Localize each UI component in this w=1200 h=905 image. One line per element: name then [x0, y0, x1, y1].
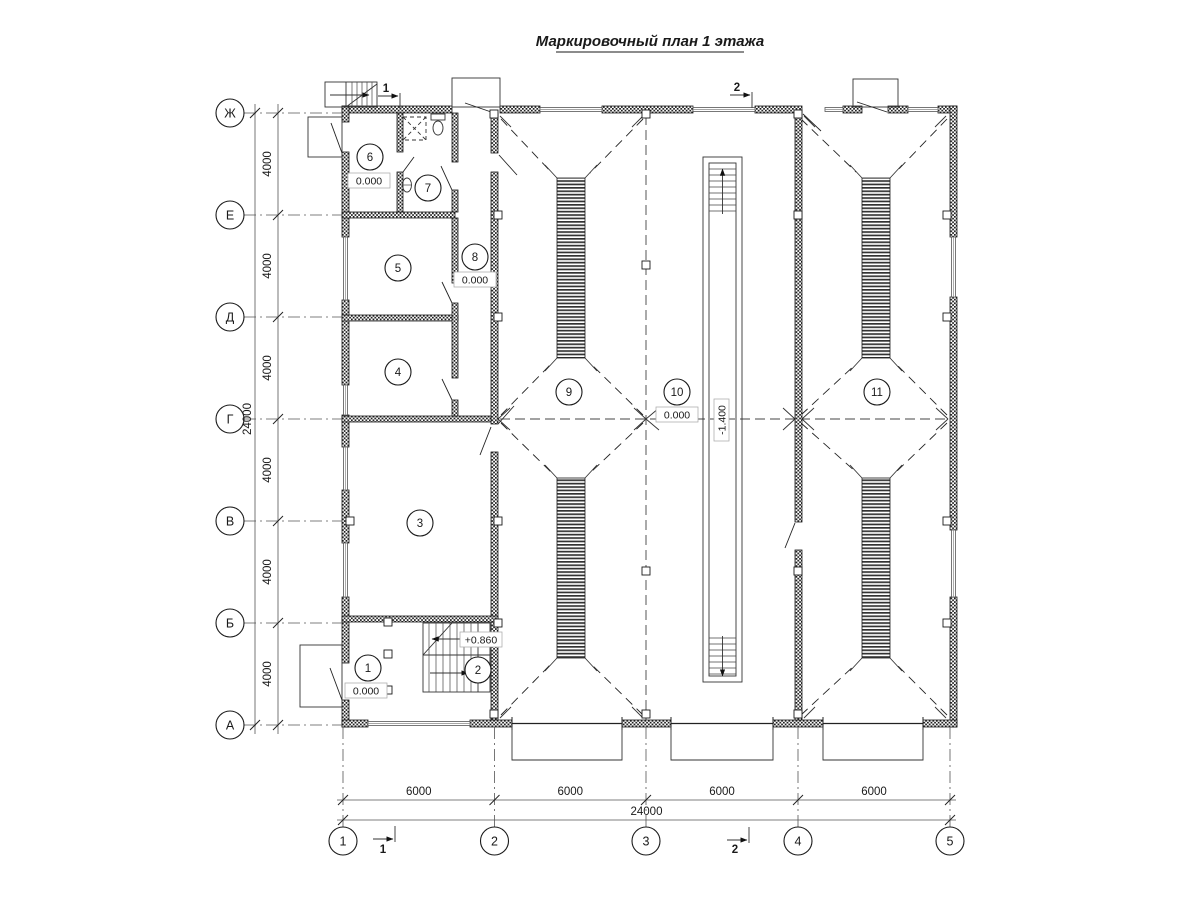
dim-label-6000: 6000 [406, 786, 432, 798]
drawing-title: Маркировочный план 1 этажа [536, 33, 764, 52]
floor-plan-svg: Маркировочный план 1 этажа [0, 0, 1200, 900]
svg-text:0.000: 0.000 [353, 686, 379, 698]
svg-text:0.000: 0.000 [356, 176, 382, 188]
door-leaves [330, 102, 887, 700]
exterior-stair [325, 82, 377, 107]
room-number: 5 [395, 263, 401, 275]
col-axis-label: 5 [947, 835, 954, 849]
dimensions-bottom: 600060006000600024000 [337, 786, 956, 825]
col-axis-label: 2 [491, 835, 498, 849]
svg-text:+0.860: +0.860 [465, 635, 498, 647]
room-number: 4 [395, 367, 402, 379]
row-axes: ЖЕДГВБА [216, 99, 342, 739]
row-axis-label: А [226, 719, 235, 733]
gate-openings [512, 717, 923, 730]
dim-label-4000: 4000 [262, 661, 274, 687]
dim-label-4000: 4000 [262, 355, 274, 381]
row-axis-label: Ж [224, 107, 236, 121]
dim-label-4000: 4000 [262, 253, 274, 279]
room-number: 2 [475, 665, 481, 677]
svg-text:2: 2 [732, 844, 738, 856]
section-mark: 2 [730, 82, 752, 108]
room-number: 8 [472, 252, 478, 264]
room-number: 1 [365, 663, 371, 675]
dim-label-6000: 6000 [709, 786, 735, 798]
row-axis-label: Б [226, 617, 234, 631]
drawing-sheet: Маркировочный план 1 этажа [0, 0, 1200, 900]
room-number: 3 [417, 518, 423, 530]
dim-label-6000: 6000 [557, 786, 583, 798]
room-number: 7 [425, 183, 431, 195]
row-axis-label: Д [226, 311, 235, 325]
room-number: 10 [671, 387, 684, 399]
svg-text:1: 1 [380, 844, 387, 856]
dim-label-left-total: 24000 [242, 403, 254, 435]
pit-ladder-bottom [709, 636, 736, 676]
column-marks [346, 110, 951, 718]
section-mark: 1 [378, 83, 400, 109]
svg-text:0.000: 0.000 [664, 410, 690, 422]
dim-label-6000: 6000 [861, 786, 887, 798]
col-axis-label: 3 [643, 835, 650, 849]
svg-text:2: 2 [734, 82, 740, 94]
svg-text:1: 1 [383, 83, 390, 95]
toilet-tank [431, 114, 445, 120]
dim-label-4000: 4000 [262, 151, 274, 177]
room-number: 6 [367, 152, 373, 164]
elevation-label: 0.000 [454, 272, 496, 287]
elevation-label: -1.400 [714, 399, 729, 441]
elevation-label: +0.860 [460, 632, 502, 647]
elevation-label: 0.000 [656, 407, 698, 422]
row-axis-label: В [226, 515, 234, 529]
svg-text:-1.400: -1.400 [717, 405, 729, 435]
title-text: Маркировочный план 1 этажа [536, 33, 764, 50]
room-number-bubbles: 1234567891011 [355, 144, 890, 683]
elevation-label: 0.000 [348, 173, 390, 188]
col-axis-label: 1 [340, 835, 347, 849]
section-mark: 1 [373, 826, 395, 856]
svg-text:0.000: 0.000 [462, 275, 488, 287]
dim-label-bottom-total: 24000 [631, 806, 663, 818]
elevation-label: 0.000 [345, 683, 387, 698]
dim-label-4000: 4000 [262, 457, 274, 483]
section-mark: 2 [727, 827, 749, 856]
room-number: 11 [871, 387, 883, 399]
dim-label-4000: 4000 [262, 559, 274, 585]
toilet-bowl [433, 121, 443, 135]
row-axis-label: Г [227, 413, 234, 427]
col-axis-label: 4 [795, 835, 802, 849]
row-axis-label: Е [226, 209, 234, 223]
pit-ladder-top [709, 169, 736, 214]
room-number: 9 [566, 387, 572, 399]
